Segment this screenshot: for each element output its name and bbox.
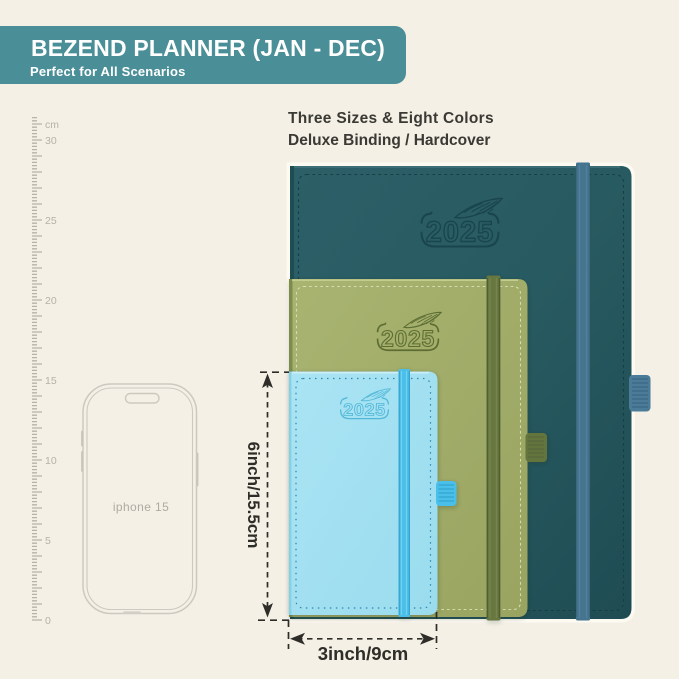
svg-text:iphone 15: iphone 15 <box>113 500 169 514</box>
svg-text:20: 20 <box>45 295 57 307</box>
svg-text:0: 0 <box>45 615 51 627</box>
svg-text:30: 30 <box>45 135 57 147</box>
svg-text:25: 25 <box>45 215 57 227</box>
svg-text:10: 10 <box>45 455 57 467</box>
svg-text:6inch/15.5cm: 6inch/15.5cm <box>244 442 263 549</box>
svg-text:5: 5 <box>45 535 51 547</box>
svg-text:cm: cm <box>45 119 59 131</box>
svg-text:15: 15 <box>45 375 57 387</box>
svg-text:3inch/9cm: 3inch/9cm <box>318 643 409 664</box>
